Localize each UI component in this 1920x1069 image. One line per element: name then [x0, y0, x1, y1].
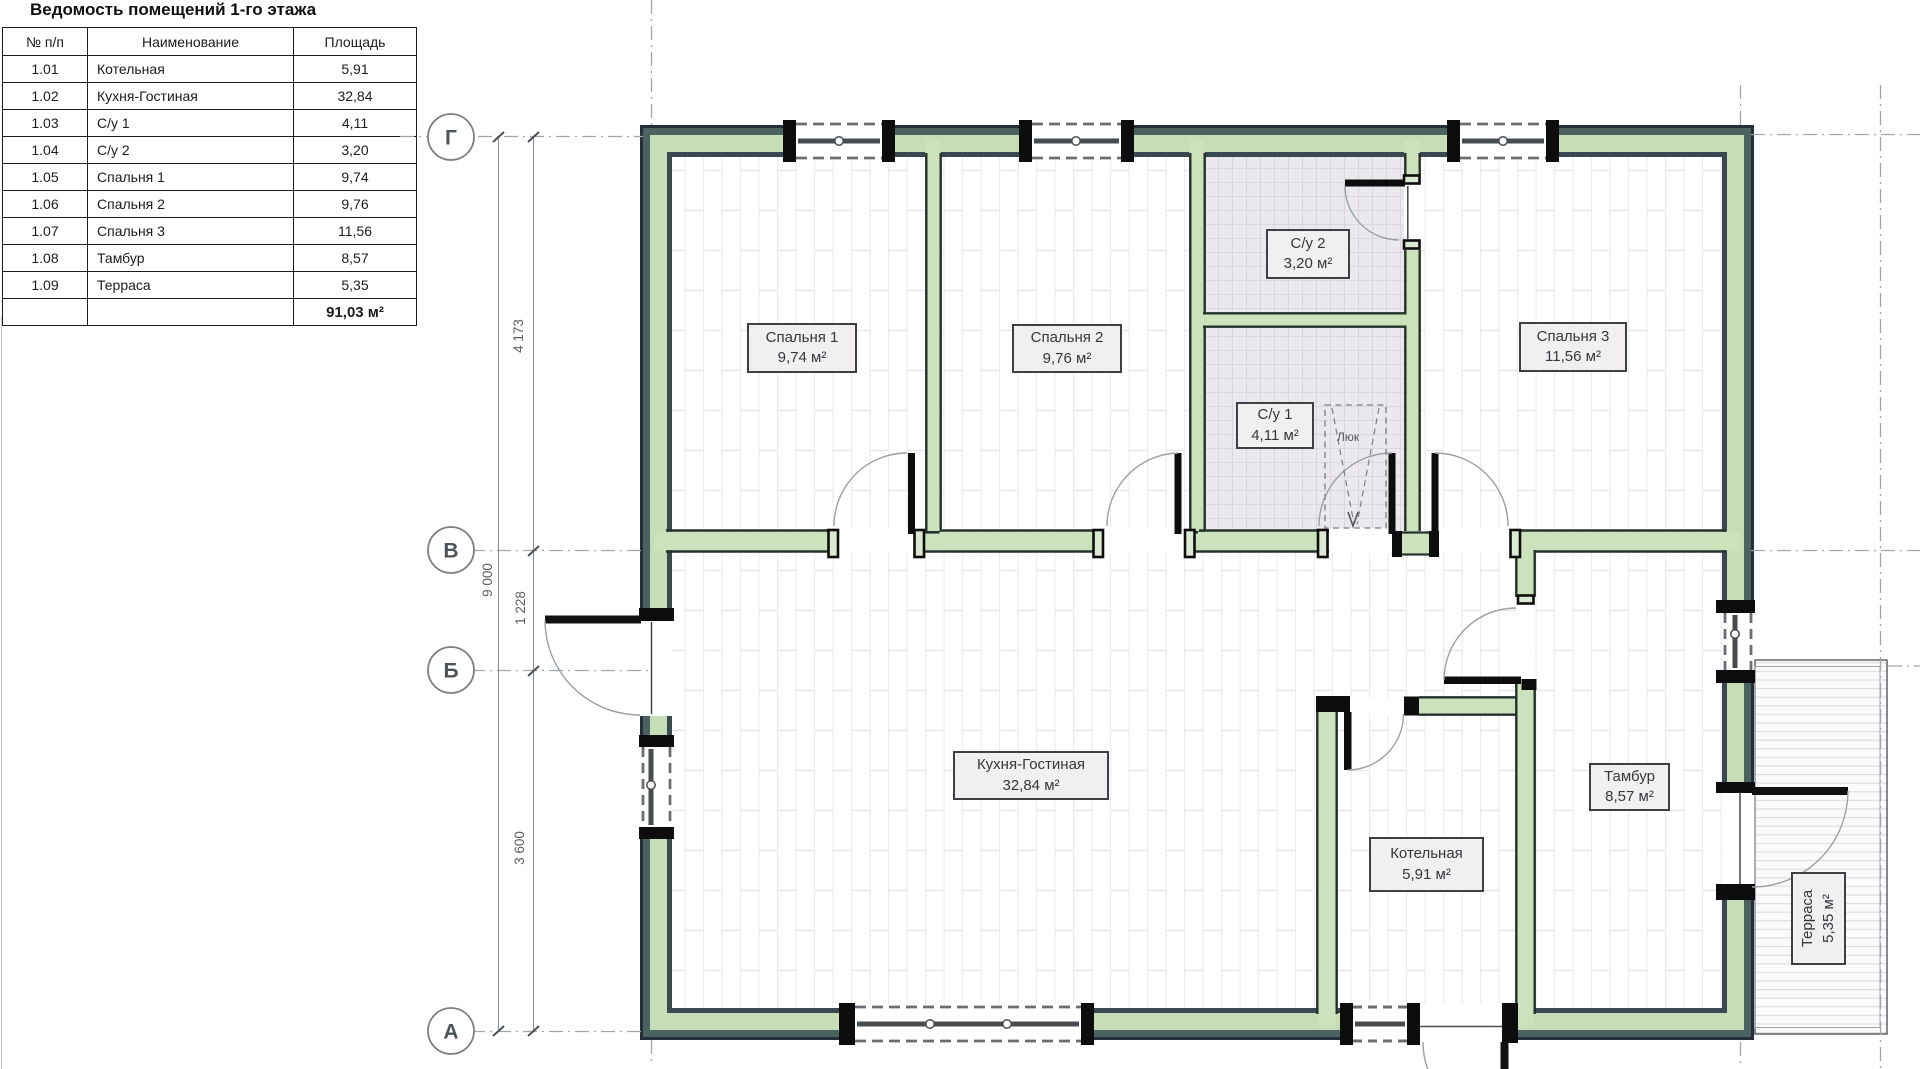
- svg-text:Г: Г: [445, 127, 457, 150]
- svg-text:9 000: 9 000: [480, 563, 495, 597]
- svg-text:А: А: [443, 1021, 458, 1044]
- svg-text:1 228: 1 228: [513, 591, 528, 625]
- svg-text:В: В: [443, 540, 458, 563]
- svg-text:4 173: 4 173: [511, 319, 526, 353]
- svg-text:3 600: 3 600: [512, 831, 527, 865]
- svg-text:Люк: Люк: [1337, 430, 1360, 444]
- svg-text:Б: Б: [443, 660, 458, 683]
